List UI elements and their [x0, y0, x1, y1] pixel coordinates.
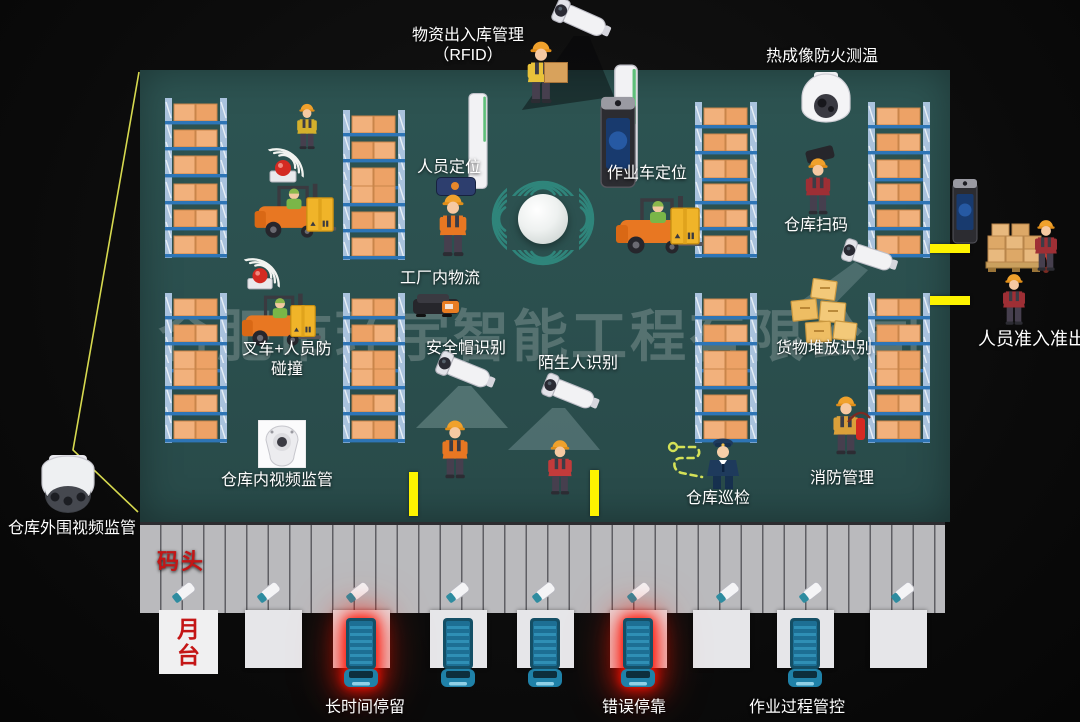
worker-pallet-jack: [1032, 218, 1060, 274]
truck: [787, 618, 823, 690]
cargo-box: [670, 206, 700, 246]
carried-box: [544, 62, 568, 83]
yellow-marker-bar: [930, 296, 970, 305]
cargo-box: [290, 304, 316, 338]
worker: [1000, 272, 1028, 328]
cargo-box: [306, 196, 334, 233]
storage-rack: [868, 102, 930, 182]
panoramic-camera-icon: [35, 455, 101, 517]
agv-robot: [412, 292, 460, 318]
storage-rack: [868, 293, 930, 373]
label-indoor-video: 仓库内视频监管: [221, 471, 333, 491]
storage-rack: [165, 98, 227, 178]
label-cargo-stacking: 货物堆放识别: [776, 339, 872, 359]
fisheye-camera-image: [258, 420, 306, 468]
platform-box: 月 台: [159, 610, 218, 674]
stacked-boxes: [786, 278, 860, 344]
label-perimeter-video: 仓库外围视频监管: [8, 519, 136, 539]
storage-rack: [695, 293, 757, 373]
signal-arcs-up: [511, 152, 575, 196]
truck-wrong-dock-alert: [620, 618, 656, 690]
label-thermal: 热成像防火测温: [766, 47, 878, 67]
face-terminal: [951, 177, 979, 245]
storage-rack: [695, 178, 757, 258]
loading-bay: [693, 610, 750, 668]
label-process-control: 作业过程管控: [749, 698, 845, 718]
label-rfid: 物资出入库管理 （RFID）: [398, 26, 538, 66]
yellow-marker-bar: [930, 244, 970, 253]
label-personnel-access: 人员准入准出: [978, 328, 1080, 351]
smart-warehouse-diagram: 合肥市环宇智能工程有限公司 物资出入库管理 （RFID） 热成像防火测温 人员定…: [0, 0, 1080, 722]
truck: [440, 618, 476, 690]
truck: [527, 618, 563, 690]
thermal-dome-camera-icon: [798, 72, 854, 124]
truck-long-stay-alert: [343, 618, 379, 690]
worker-with-tag: [436, 192, 470, 260]
yellow-marker-bar: [409, 472, 418, 516]
signal-arcs-down: [511, 250, 575, 294]
storage-rack: [695, 363, 757, 443]
storage-rack: [343, 293, 405, 373]
storage-rack: [868, 363, 930, 443]
patrol-officer: [706, 436, 740, 492]
label-warehouse-scanning: 仓库扫码: [784, 216, 848, 236]
storage-rack: [165, 293, 227, 373]
stranger-person: [545, 438, 575, 498]
label-long-stay: 长时间停留: [325, 698, 405, 718]
extinguisher-hose: [846, 404, 872, 426]
alarm-beacon: [244, 266, 276, 291]
label-vehicle-positioning: 作业车定位: [607, 164, 687, 184]
storage-rack: [165, 178, 227, 258]
yellow-marker-bar: [590, 470, 599, 516]
label-person-positioning: 人员定位: [417, 158, 481, 178]
storage-rack: [343, 110, 405, 190]
label-warehouse-patrol: 仓库巡检: [686, 489, 750, 509]
uwb-base-station: [518, 194, 568, 244]
loading-bay: [870, 610, 927, 668]
worker: [294, 102, 320, 152]
label-wrong-docking: 错误停靠: [602, 698, 666, 718]
worker-with-helmet: [438, 418, 472, 482]
loading-bay: [245, 610, 302, 668]
worker-scanning: [802, 156, 834, 218]
storage-rack: [165, 363, 227, 443]
storage-rack: [343, 363, 405, 443]
label-fire-management: 消防管理: [810, 469, 874, 489]
label-dock: 码头: [157, 548, 205, 576]
label-factory-logistics: 工厂内物流: [400, 269, 480, 289]
storage-rack: [695, 102, 757, 182]
storage-rack: [343, 180, 405, 260]
label-forklift-collision: 叉车+人员防 碰撞: [232, 340, 342, 380]
